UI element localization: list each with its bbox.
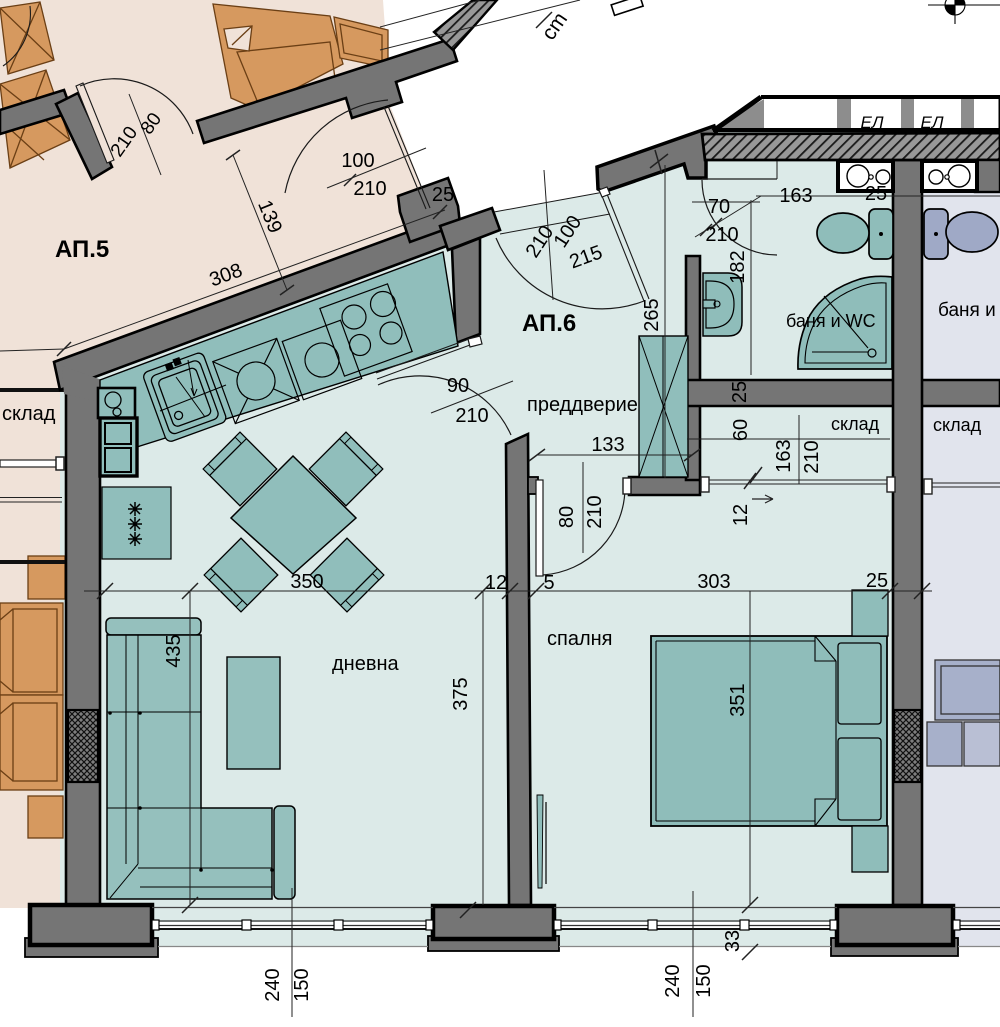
svg-text:баня и WC: баня и WC <box>786 311 876 331</box>
svg-text:210: 210 <box>353 178 386 200</box>
svg-text:спалня: спалня <box>547 628 613 650</box>
svg-text:210: 210 <box>455 405 488 427</box>
svg-text:375: 375 <box>450 677 472 710</box>
svg-text:90: 90 <box>447 375 469 397</box>
svg-text:435: 435 <box>163 634 185 667</box>
svg-text:351: 351 <box>727 683 749 716</box>
svg-text:АП.5: АП.5 <box>55 236 109 263</box>
svg-text:12: 12 <box>730 504 752 526</box>
svg-text:303: 303 <box>697 571 730 593</box>
svg-text:33: 33 <box>722 930 744 952</box>
svg-text:240: 240 <box>662 964 684 997</box>
svg-text:25: 25 <box>729 381 751 403</box>
svg-text:склад: склад <box>2 403 56 425</box>
svg-text:210: 210 <box>705 224 738 246</box>
svg-text:25: 25 <box>865 183 887 205</box>
svg-text:25: 25 <box>432 184 454 206</box>
svg-text:5: 5 <box>543 572 554 594</box>
svg-text:25: 25 <box>866 570 888 592</box>
svg-text:ЕЛ: ЕЛ <box>861 113 884 132</box>
svg-text:70: 70 <box>708 196 730 218</box>
svg-text:350: 350 <box>290 571 323 593</box>
svg-text:182: 182 <box>727 250 749 283</box>
svg-text:дневна: дневна <box>332 653 400 675</box>
svg-text:60: 60 <box>730 419 752 441</box>
svg-text:210: 210 <box>584 495 606 528</box>
svg-text:АП.6: АП.6 <box>522 310 576 337</box>
svg-text:163: 163 <box>773 439 795 472</box>
svg-text:80: 80 <box>556 506 578 528</box>
svg-text:150: 150 <box>291 968 313 1001</box>
svg-text:133: 133 <box>591 434 624 456</box>
svg-text:преддверие: преддверие <box>527 394 638 416</box>
svg-text:163: 163 <box>779 185 812 207</box>
svg-text:150: 150 <box>693 964 715 997</box>
svg-text:12: 12 <box>485 572 507 594</box>
svg-text:210: 210 <box>801 440 823 473</box>
svg-text:ЕЛ: ЕЛ <box>921 113 944 132</box>
svg-text:баня и: баня и <box>938 300 996 321</box>
svg-text:склад: склад <box>831 414 880 434</box>
svg-text:склад: склад <box>933 415 982 435</box>
svg-text:100: 100 <box>341 150 374 172</box>
svg-text:265: 265 <box>641 298 663 331</box>
svg-text:240: 240 <box>262 968 284 1001</box>
